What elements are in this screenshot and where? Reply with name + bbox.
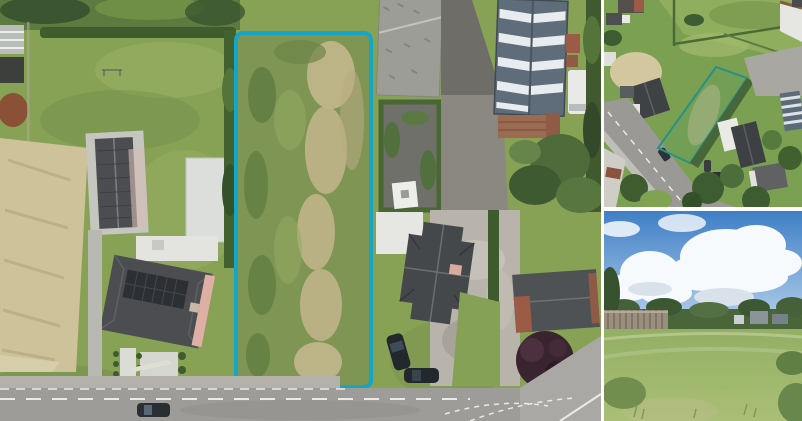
brick-shed: [566, 34, 580, 53]
parked-car-2: [404, 368, 439, 383]
greenhouse: [0, 25, 24, 83]
brick-shed-2: [566, 55, 578, 67]
white-van: [568, 70, 589, 114]
metal-barn: [494, 0, 568, 116]
stone-barn: [376, 0, 442, 97]
center-house-lawn: [452, 292, 500, 386]
patio: [136, 236, 218, 261]
meadow: [604, 329, 802, 421]
building-plot: [236, 33, 371, 387]
photo-collage: [0, 0, 802, 421]
outbuilding: [85, 130, 148, 235]
walled-garden: [379, 100, 441, 212]
patio-box: [152, 240, 164, 250]
car-on-road: [137, 403, 170, 417]
brick-house: [512, 269, 600, 333]
bare-field: [0, 138, 88, 372]
center-house-hedge: [488, 210, 499, 302]
main-aerial-photo[interactable]: [0, 0, 601, 421]
ground-level-photo[interactable]: [604, 211, 802, 421]
secondary-aerial-photo[interactable]: [604, 0, 802, 207]
